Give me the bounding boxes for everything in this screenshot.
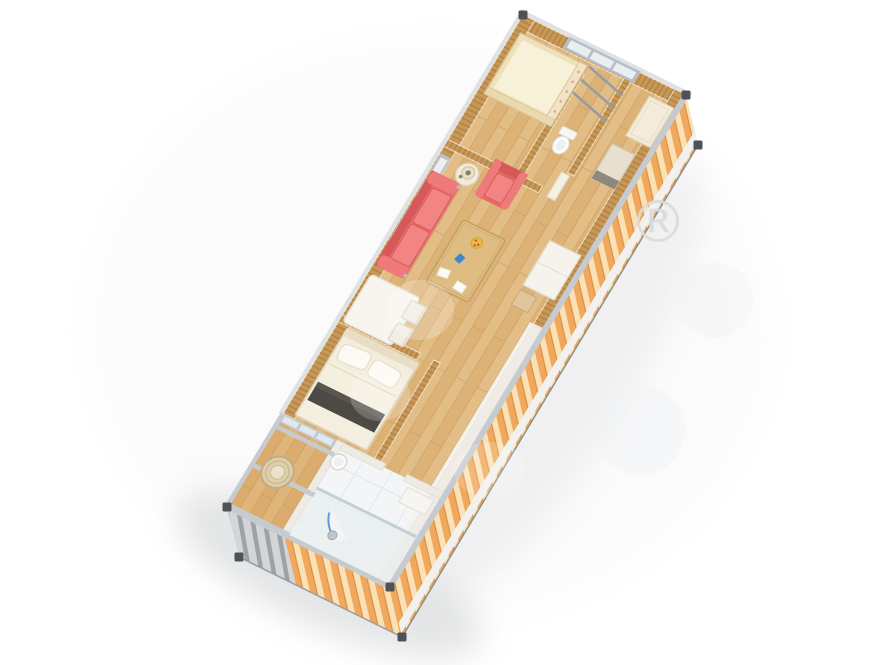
render-canvas: ®: [0, 0, 886, 665]
watermark-glyph: [677, 262, 753, 338]
watermark-glyph: [386, 280, 454, 340]
watermark-glyph: [595, 385, 685, 475]
watermark-glyph: [454, 442, 526, 498]
container-house-render: ®: [0, 0, 886, 665]
watermark-registered-symbol: ®: [629, 188, 687, 256]
watermark-glyph: [350, 369, 410, 421]
